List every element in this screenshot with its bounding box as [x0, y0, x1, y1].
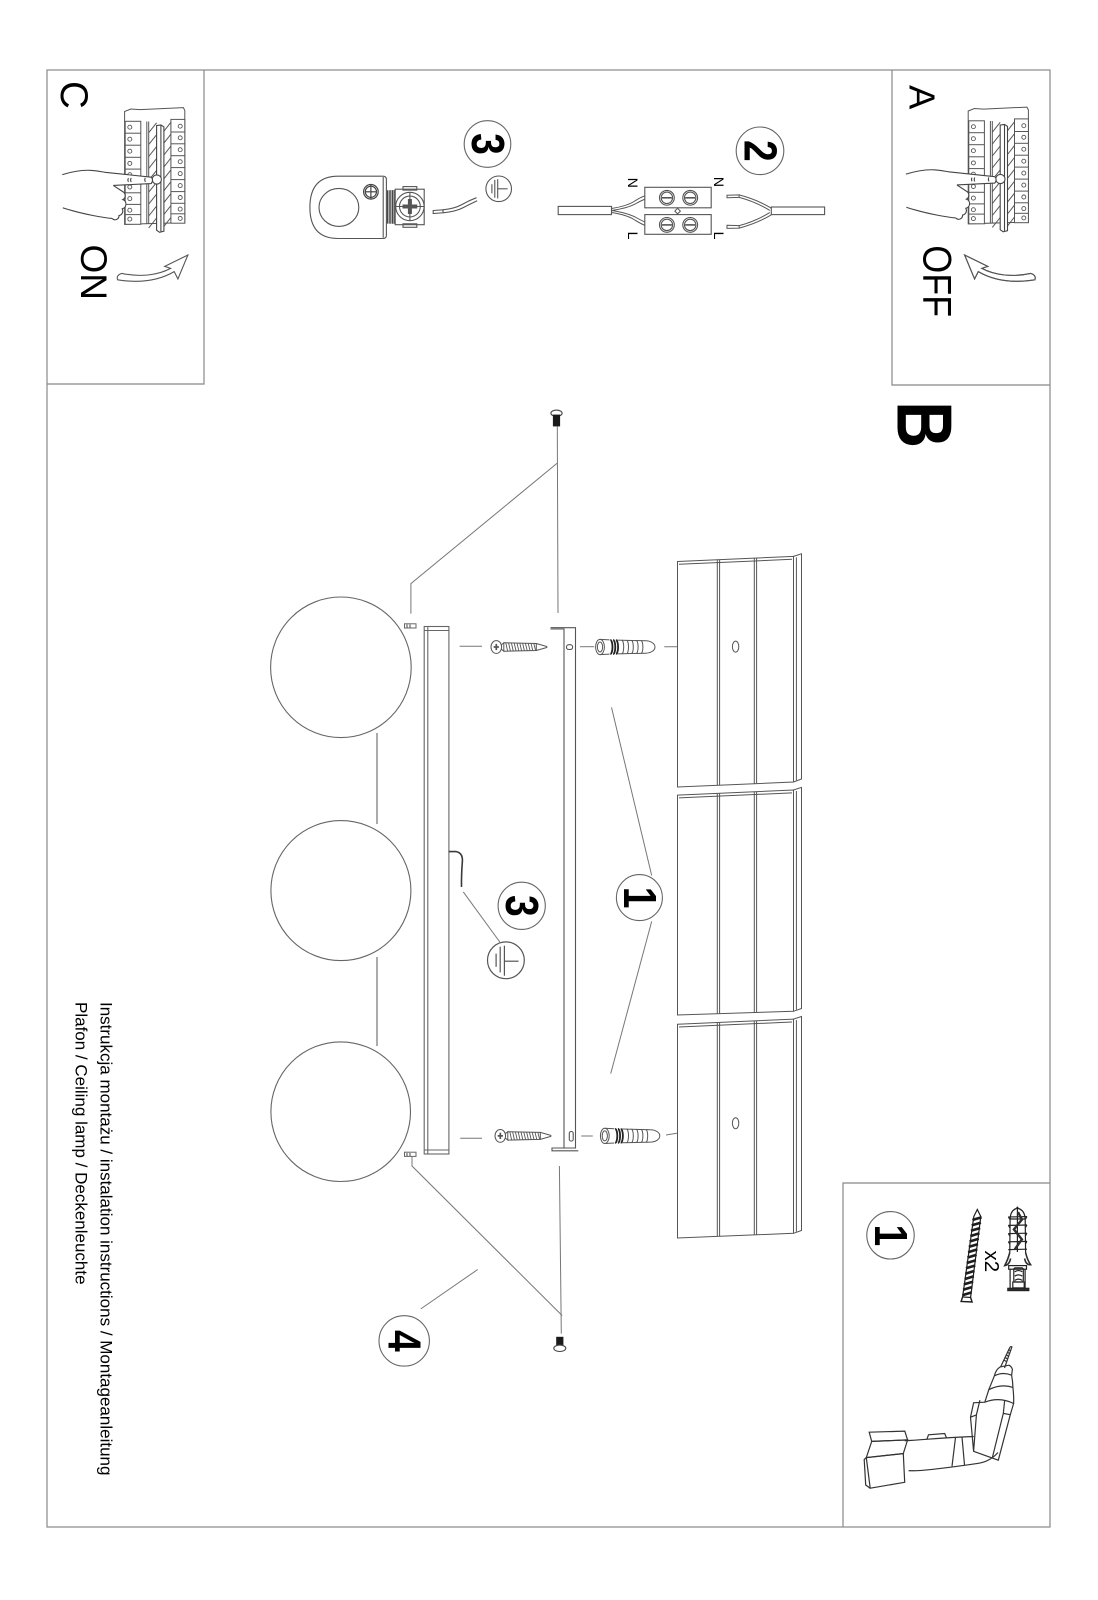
svg-text:2: 2: [734, 140, 786, 162]
svg-text:B: B: [880, 401, 967, 448]
svg-text:3: 3: [495, 895, 547, 917]
svg-text:Instrukcja montażu / instalati: Instrukcja montażu / instalation instruc…: [97, 1002, 116, 1475]
svg-text:ON: ON: [73, 245, 114, 301]
svg-text:Plafon / Ceiling lamp / Decken: Plafon / Ceiling lamp / Deckenleuchte: [72, 1002, 91, 1285]
svg-text:1: 1: [864, 1224, 916, 1246]
svg-text:C: C: [52, 81, 95, 109]
svg-text:1: 1: [613, 887, 665, 909]
svg-text:4: 4: [378, 1330, 430, 1352]
svg-text:OFF: OFF: [914, 245, 958, 317]
svg-text:N: N: [625, 178, 641, 188]
svg-text:3: 3: [461, 133, 513, 155]
svg-text:x2: x2: [980, 1251, 1003, 1273]
svg-text:A: A: [902, 85, 943, 110]
svg-text:N: N: [711, 177, 727, 187]
svg-text:L: L: [625, 232, 641, 240]
svg-text:L: L: [711, 232, 727, 240]
